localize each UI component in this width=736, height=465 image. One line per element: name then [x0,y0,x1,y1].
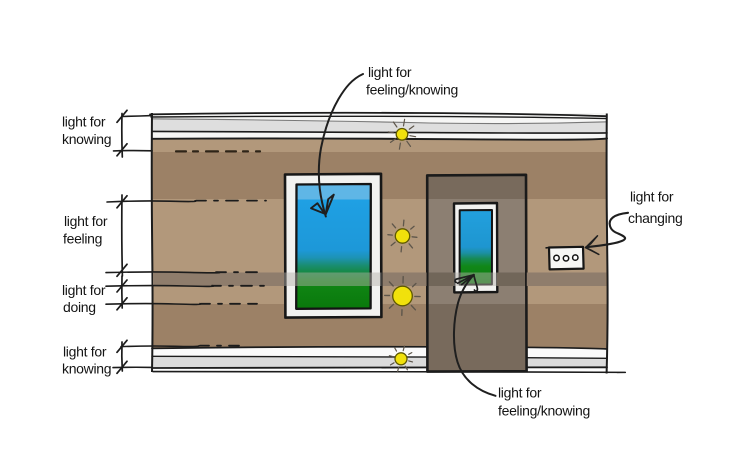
svg-text:feeling: feeling [63,231,102,247]
svg-text:light for: light for [62,282,106,298]
svg-text:light for: light for [62,114,106,130]
svg-text:knowing: knowing [62,131,111,147]
svg-text:doing: doing [63,299,96,315]
svg-text:light for: light for [64,213,108,229]
svg-text:light for: light for [368,64,412,80]
svg-text:feeling/knowing: feeling/knowing [498,403,590,419]
svg-text:light for: light for [63,344,107,360]
svg-text:knowing: knowing [62,361,111,377]
svg-text:feeling/knowing: feeling/knowing [366,82,458,98]
svg-text:light for: light for [498,385,542,401]
svg-text:light for: light for [630,189,674,205]
svg-text:changing: changing [628,210,682,226]
